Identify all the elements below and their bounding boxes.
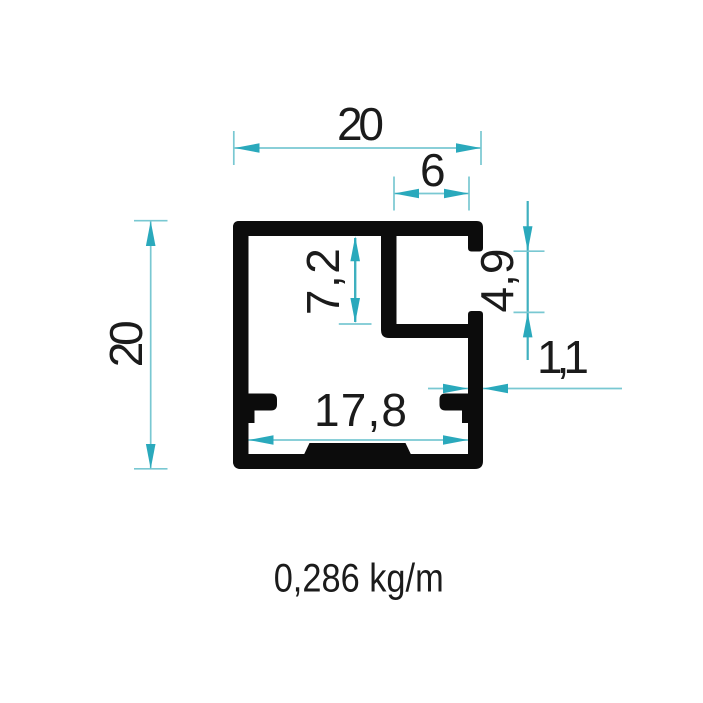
svg-text:0,286 kg/m: 0,286 kg/m xyxy=(274,557,444,601)
svg-text:17,8: 17,8 xyxy=(314,384,407,436)
svg-text:20: 20 xyxy=(337,98,384,150)
svg-text:4,9: 4,9 xyxy=(471,249,523,313)
svg-text:20: 20 xyxy=(100,320,152,367)
svg-text:1,1: 1,1 xyxy=(537,331,589,383)
svg-text:6: 6 xyxy=(420,144,446,196)
svg-text:7,2: 7,2 xyxy=(297,248,349,315)
